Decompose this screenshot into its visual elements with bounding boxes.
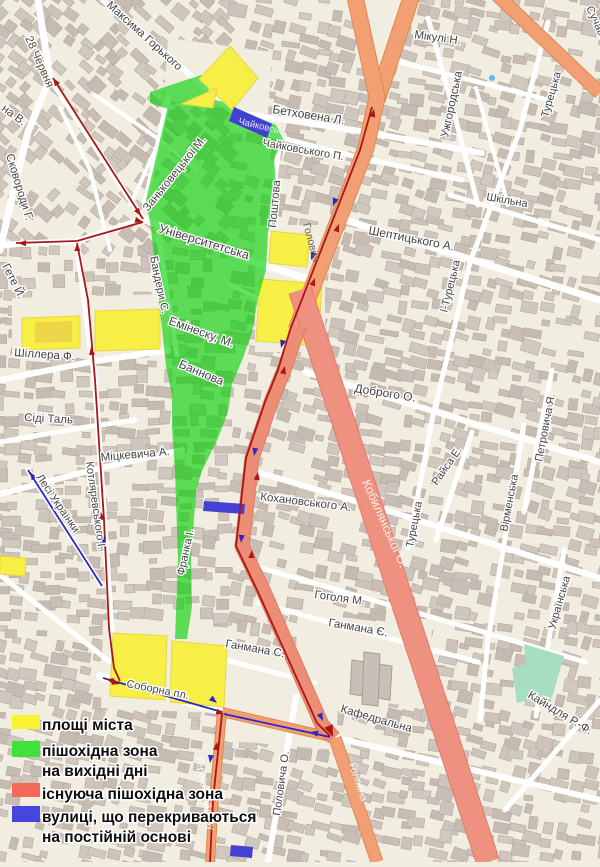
- svg-text:площі міста: площі міста: [42, 717, 133, 734]
- svg-text:на постійній основі: на постійній основі: [42, 829, 191, 846]
- svg-text:вулиці, що перекриваються: вулиці, що перекриваються: [42, 809, 256, 826]
- svg-text:пішохідна зона: пішохідна зона: [42, 743, 158, 760]
- svg-text:Сіді Таль: Сіді Таль: [24, 412, 73, 427]
- svg-text:існуюча пішохідна зона: існуюча пішохідна зона: [42, 786, 223, 803]
- svg-text:на вихідні дні: на вихідні дні: [42, 763, 148, 780]
